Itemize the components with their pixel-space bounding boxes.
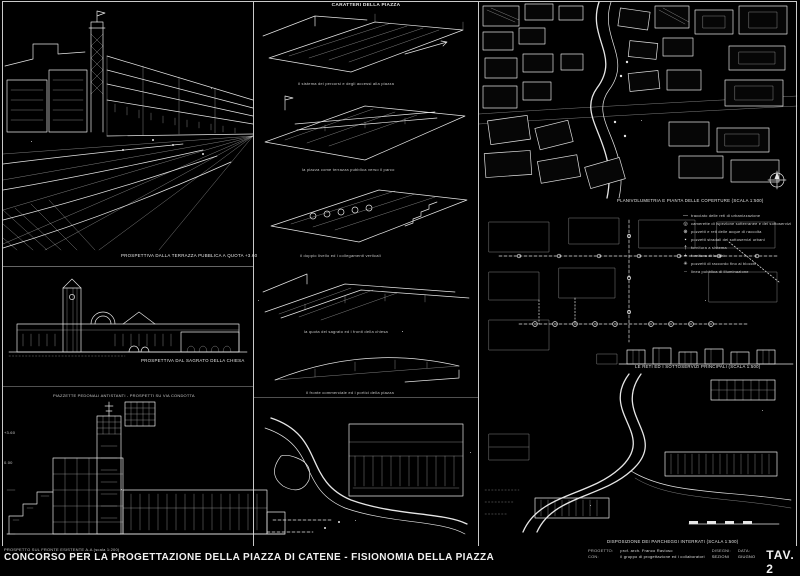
main-elevation-drawing [5,400,287,546]
title-block-labels: PROGETTO: CON: [588,548,613,559]
sketch-caption-5: il fronte commerciale ed i portici della… [306,390,394,395]
church-caption: PROSPETTIVA DAL SAGRATO DELLA CHIESA [141,358,245,363]
legend-item: ✳ pozzetti di raccordo fino ai blocchi [680,262,794,267]
con-label: CON: [588,554,613,559]
level-mark-upper: +3.60 [4,430,15,435]
legend-item: ⊕ pozzetti e reti delle acque di raccolt… [680,230,794,235]
board-title: CONCORSO PER LA PROGETTAZIONE DELLA PIAZ… [4,552,494,563]
left-divider-1 [3,266,253,267]
legend-item: † fornitura a sistema [680,246,794,251]
legend-well-symbol: ⊕ [680,230,691,235]
legend-junction-symbol: ✳ [680,262,691,267]
legend-item: ◎ camerette di ispezione sotterranee e d… [680,222,794,227]
data-value: GIUGNO [738,554,755,559]
level-mark-lower: 0.00 [4,460,13,465]
right-column: PLANIVOLUMETRIA E PIANTA DELLE COPERTURE… [479,2,797,546]
roof-plan-map [479,2,797,198]
piazza-sketch-3 [255,176,477,250]
title-block-date-info: DATA: GIUGNO [738,548,755,559]
piazza-perspective-drawing [3,4,253,250]
scan-noise [0,0,1,1]
middle-divider [254,397,478,398]
parking-caption: DISPOSIZIONE DEI PARCHEGGI INTERRATI (sc… [607,539,739,544]
middle-column-header: CARATTERI DELLA PIAZZA [254,3,478,8]
church-elevation-drawing [5,274,251,358]
sketch-caption-4: la quota del sagrato ed i fronti della c… [304,329,388,334]
legend-local-supply-symbol: + [680,254,691,259]
tav-number: TAV. 2 [766,548,800,576]
elevation-note: PIAZZETTE PEDONALI ANTISTANTI - PROSPETT… [53,393,195,398]
network-caption: LE RETI ED I SOTTOSERVIZI PRINCIPALI (sc… [635,364,760,369]
data-label: DATA: [738,548,755,553]
middle-column: CARATTERI DELLA PIAZZA il sistema dei pe… [254,2,478,546]
left-divider-2 [3,386,253,387]
map-caption: PLANIVOLUMETRIA E PIANTA DELLE COPERTURE… [617,198,764,203]
piazza-sketch-2 [255,90,477,164]
title-block-drawing-info: DISEGNI: SEZIONI [712,548,731,559]
progetto-label: PROGETTO: [588,548,613,553]
title-block-values: prof. arch. Franco Ravioso il gruppo di … [620,548,704,559]
legend-drain-symbol: ▪ [680,238,691,243]
legend-item: ┄ linea pubblica di illuminazione [680,270,794,275]
progetto-value: prof. arch. Franco Ravioso [620,548,704,553]
legend-item: + fornitura di luoghi [680,254,794,259]
perspective-caption: PROSPETTIVA DALLA TERRAZZA PUBBLICA A QU… [121,253,257,258]
utilities-legend: — tracciato delle reti di urbanizzazione… [680,214,794,278]
piazza-sketch-4 [255,262,477,326]
piazza-sketch-5 [255,338,477,388]
legend-item: ▪ pozzetti stradali dei sottoservizi urb… [680,238,794,243]
title-block: PROGETTO: CON: prof. arch. Franco Ravios… [588,548,800,576]
legend-supply-symbol: † [680,246,691,251]
legend-chamber-symbol: ◎ [680,222,691,227]
piazza-sketch-1 [255,10,477,80]
sketch-caption-3: il doppio livello ed i collegamenti vert… [300,253,381,258]
left-column: PROSPETTIVA DALLA TERRAZZA PUBBLICA A QU… [3,2,253,546]
legend-line-symbol: — [680,214,691,219]
legend-lighting-symbol: ┄ [680,270,691,275]
disegno-label: DISEGNI: [712,548,731,553]
sketch-caption-1: il sistema dei percorsi e degli accessi … [298,81,394,86]
disegno-value: SEZIONI [712,554,731,559]
plan-sketch-drawing [255,402,477,544]
footer-strip: PROSPETTO SUL FRONTE ESISTENTE A-A (scal… [0,546,800,563]
legend-item: — tracciato delle reti di urbanizzazione [680,214,794,219]
parking-plan-drawing [479,374,797,532]
con-value: il gruppo di progettazione ed i collabor… [620,554,704,559]
sketch-caption-2: la piazza come terrazza pubblica verso i… [302,167,395,172]
